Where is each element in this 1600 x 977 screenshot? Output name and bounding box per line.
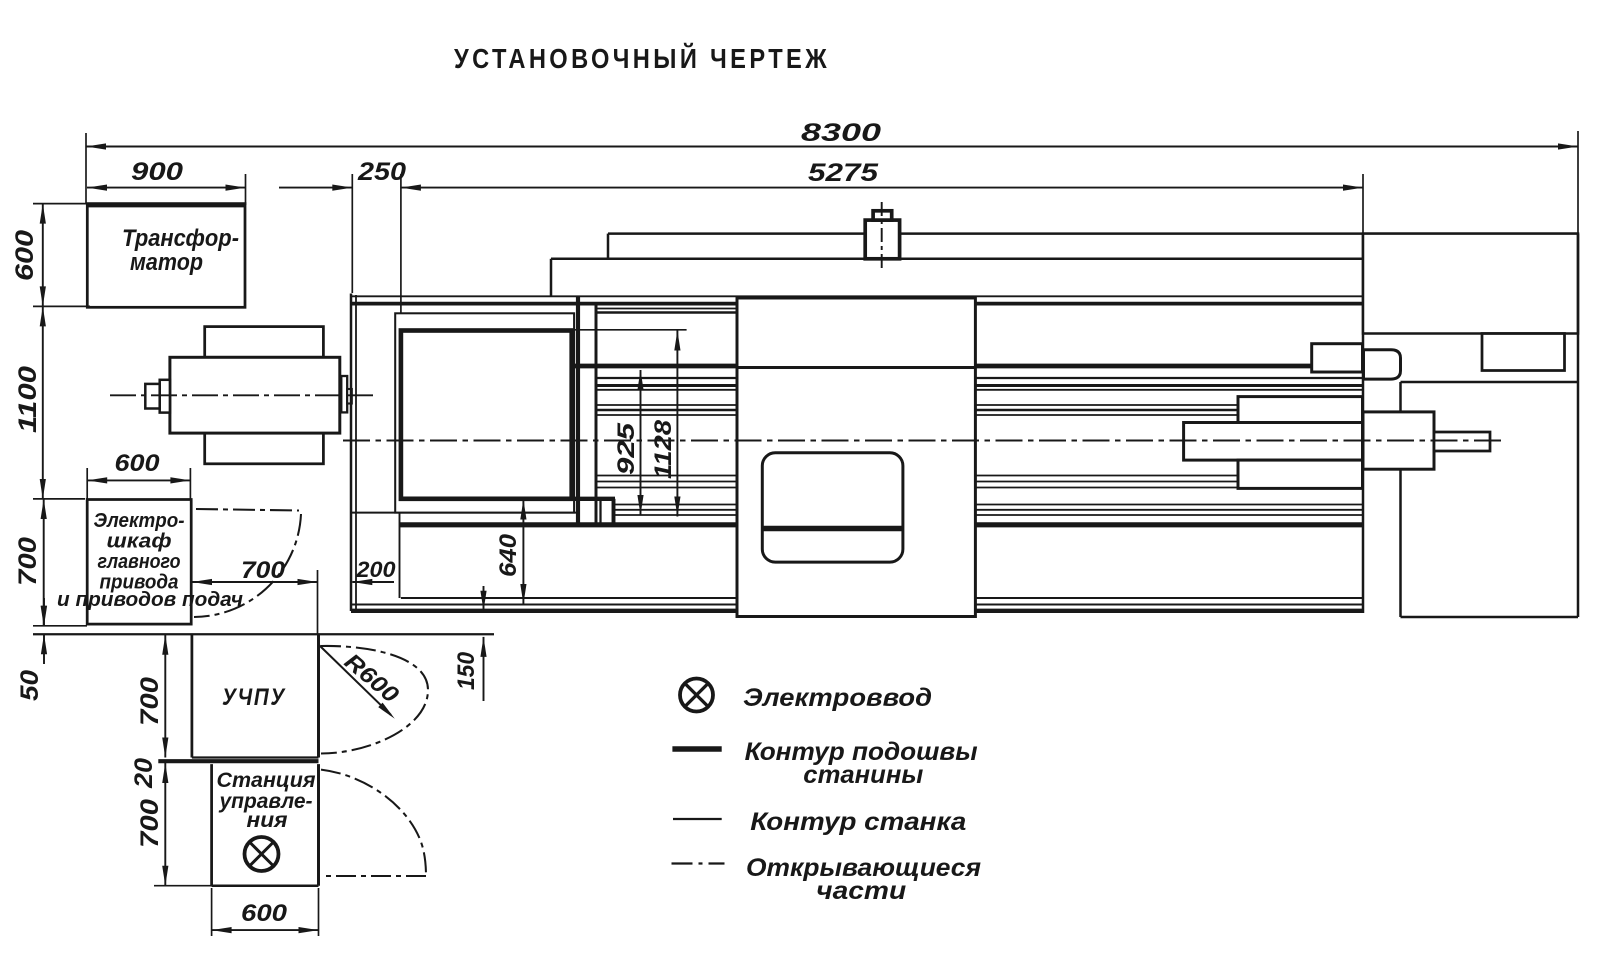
svg-text:700: 700 <box>136 677 164 726</box>
svg-text:150: 150 <box>453 651 480 690</box>
svg-text:925: 925 <box>613 422 640 475</box>
svg-text:1100: 1100 <box>14 366 42 433</box>
svg-text:шкаф: шкаф <box>107 531 172 553</box>
svg-text:8300: 8300 <box>801 119 881 147</box>
svg-text:5275: 5275 <box>808 159 879 187</box>
svg-text:УСТАНОВОЧНЫЙ ЧЕРТЕЖ: УСТАНОВОЧНЫЙ ЧЕРТЕЖ <box>454 42 830 74</box>
svg-text:части: части <box>816 877 906 905</box>
svg-text:станины: станины <box>803 761 923 789</box>
svg-text:Контур станка: Контур станка <box>750 808 966 836</box>
svg-text:600: 600 <box>11 230 39 281</box>
svg-text:ния: ния <box>247 809 288 832</box>
svg-text:700: 700 <box>136 799 164 848</box>
svg-text:600: 600 <box>115 450 161 477</box>
svg-text:УЧПУ: УЧПУ <box>222 684 286 711</box>
svg-text:200: 200 <box>355 557 396 582</box>
svg-text:250: 250 <box>357 158 406 186</box>
svg-text:50: 50 <box>16 670 44 701</box>
svg-text:640: 640 <box>495 533 522 577</box>
svg-text:Электроввод: Электроввод <box>743 684 932 712</box>
svg-text:Трансфор-: Трансфор- <box>122 225 239 252</box>
svg-text:700: 700 <box>241 557 286 584</box>
svg-text:Электро-: Электро- <box>94 510 185 532</box>
svg-text:900: 900 <box>131 158 183 186</box>
svg-text:1128: 1128 <box>650 419 677 479</box>
svg-text:и приводов подач: и приводов подач <box>57 589 243 611</box>
svg-text:матор: матор <box>130 249 203 276</box>
svg-text:700: 700 <box>14 537 42 586</box>
svg-text:Станция: Станция <box>217 769 316 792</box>
svg-text:главного: главного <box>98 551 181 573</box>
svg-text:600: 600 <box>241 900 288 927</box>
svg-text:20: 20 <box>130 758 158 789</box>
svg-text:R600: R600 <box>340 648 404 708</box>
